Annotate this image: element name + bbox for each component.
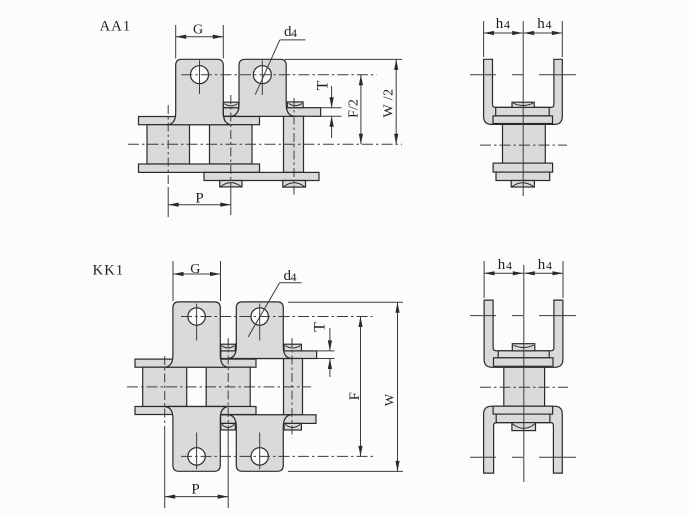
svg-text:F/2: F/2 bbox=[347, 99, 362, 118]
svg-text:4: 4 bbox=[546, 258, 552, 272]
svg-text:G: G bbox=[193, 23, 203, 38]
svg-text:W /2: W /2 bbox=[382, 89, 397, 118]
svg-text:4: 4 bbox=[506, 258, 512, 272]
svg-text:P: P bbox=[191, 481, 199, 497]
svg-text:F: F bbox=[347, 392, 363, 400]
svg-text:h: h bbox=[496, 16, 504, 32]
svg-text:h: h bbox=[538, 257, 546, 273]
svg-text:h: h bbox=[537, 16, 545, 32]
svg-text:T: T bbox=[312, 322, 329, 332]
svg-text:AA1: AA1 bbox=[100, 19, 132, 35]
svg-text:P: P bbox=[195, 190, 203, 206]
svg-text:KK1: KK1 bbox=[93, 263, 125, 279]
svg-text:4: 4 bbox=[291, 26, 297, 40]
svg-text:4: 4 bbox=[504, 18, 510, 32]
svg-text:G: G bbox=[190, 262, 200, 277]
svg-text:4: 4 bbox=[546, 18, 552, 32]
svg-text:W: W bbox=[382, 393, 397, 406]
svg-text:T: T bbox=[315, 80, 332, 90]
svg-text:4: 4 bbox=[291, 270, 297, 284]
svg-text:h: h bbox=[498, 257, 506, 273]
